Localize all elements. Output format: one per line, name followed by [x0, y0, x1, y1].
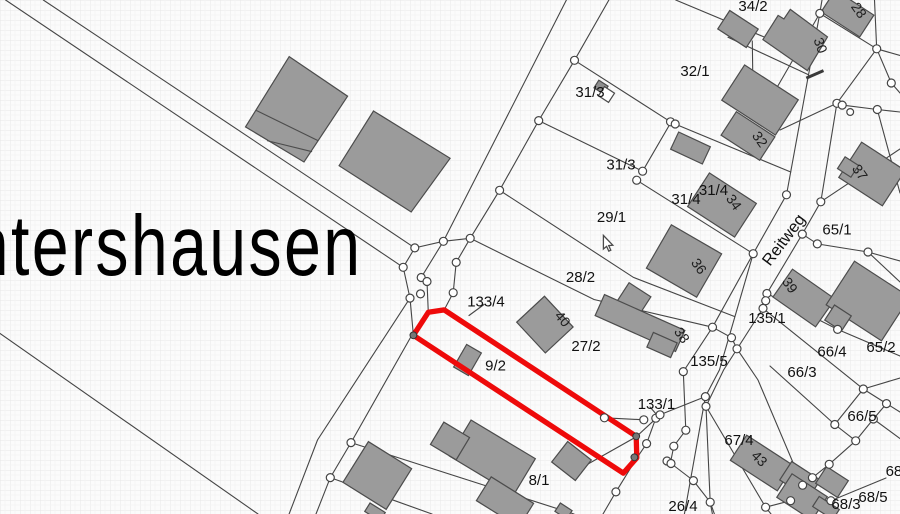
svg-text:133/1: 133/1 [638, 396, 676, 413]
svg-text:68/3: 68/3 [831, 496, 860, 513]
svg-text:9/2: 9/2 [485, 358, 506, 375]
svg-text:133/4: 133/4 [467, 294, 505, 311]
svg-text:67/4: 67/4 [724, 432, 753, 449]
svg-text:135/5: 135/5 [690, 353, 728, 370]
svg-text:31/3: 31/3 [575, 84, 604, 101]
svg-text:65/2: 65/2 [866, 339, 895, 356]
svg-text:28/2: 28/2 [566, 269, 595, 286]
svg-text:ntershausen: ntershausen [0, 199, 362, 294]
svg-text:29/1: 29/1 [597, 209, 626, 226]
svg-text:66/5: 66/5 [847, 408, 876, 425]
svg-text:66/4: 66/4 [817, 344, 846, 361]
svg-text:135/1: 135/1 [748, 310, 786, 327]
svg-text:8/1: 8/1 [529, 472, 550, 489]
svg-text:31/3: 31/3 [606, 157, 635, 174]
svg-text:31/4: 31/4 [699, 182, 728, 199]
svg-text:34/2: 34/2 [738, 0, 767, 15]
svg-text:31/4: 31/4 [671, 191, 700, 208]
svg-text:68/: 68/ [886, 463, 900, 480]
svg-text:27/2: 27/2 [571, 338, 600, 355]
svg-text:32/1: 32/1 [680, 63, 709, 80]
svg-text:68/5: 68/5 [858, 489, 887, 506]
svg-text:66/3: 66/3 [787, 364, 816, 381]
svg-text:65/1: 65/1 [822, 222, 851, 239]
svg-text:26/4: 26/4 [668, 498, 697, 514]
